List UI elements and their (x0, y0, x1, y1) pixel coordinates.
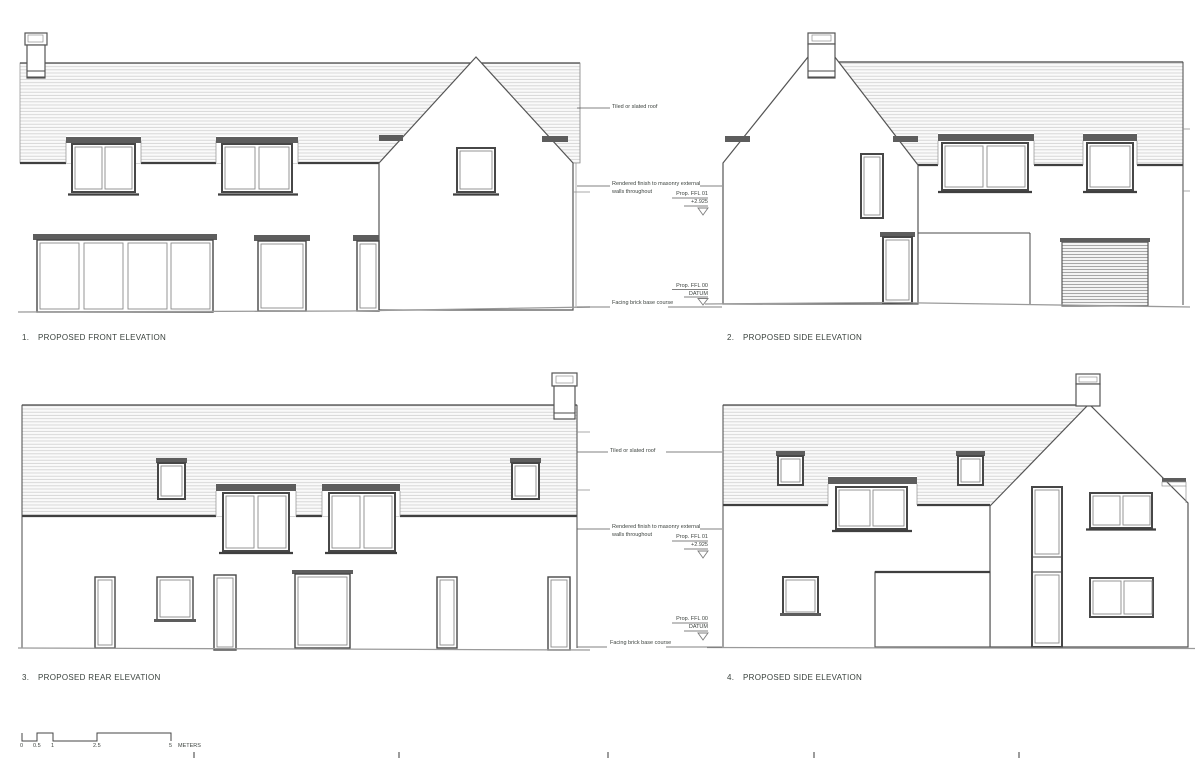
level-label-ffl01-top: Prop. FFL 01 (658, 191, 708, 199)
scale-unit-label: METERS (178, 743, 201, 749)
level-label-ffl00-bottom: Prop. FFL 00 (658, 616, 708, 624)
drawing-sheet: Tiled or slated roof Rendered finish to … (0, 0, 1200, 759)
side-elevation-2-drawing (705, 33, 1190, 307)
rear-chimney (552, 373, 577, 419)
annotation-rendered-finish-top-line1: Rendered finish to masonry external (612, 181, 700, 189)
side-elevation-4-number: 4. (727, 673, 743, 682)
side4-glazing-strip (1032, 487, 1062, 647)
front-elevation-label: 1.PROPOSED FRONT ELEVATION (22, 333, 166, 342)
side2-door (880, 232, 915, 303)
annotation-rendered-finish-bottom-line1: Rendered finish to masonry external (612, 524, 700, 532)
rear-elevation-drawing (18, 373, 590, 650)
level-value-ffl00-bottom: DATUM (658, 624, 708, 632)
scale-mark-5: 5 (169, 743, 172, 749)
scale-bar (22, 733, 171, 741)
annotation-tiled-roof-top: Tiled or slated roof (612, 104, 657, 112)
annotation-rendered-finish-bottom-line2: walls throughout (612, 532, 652, 540)
front-elevation-title: PROPOSED FRONT ELEVATION (38, 333, 166, 342)
side-elevation-4-drawing (707, 374, 1195, 649)
front-elevation-number: 1. (22, 333, 38, 342)
side2-garage-door (1060, 238, 1150, 306)
side2-gable-window (861, 154, 883, 218)
elevation-drawings (0, 0, 1200, 759)
side4-chimney (1076, 374, 1100, 406)
level-marker-icon (698, 633, 708, 640)
annotation-facing-brick-bottom: Facing brick base course (610, 640, 671, 648)
level-marker-icon (698, 208, 708, 215)
side4-garage-door (875, 572, 990, 647)
rear-elevation-title: PROPOSED REAR ELEVATION (38, 673, 161, 682)
front-ground-floor-openings (33, 234, 379, 312)
annotation-facing-brick-top: Facing brick base course (612, 300, 673, 308)
front-gable-window (453, 148, 499, 195)
level-value-ffl00-top: DATUM (658, 291, 708, 299)
level-value-ffl01-top: +2.925 (658, 199, 708, 207)
side-elevation-2-label: 2.PROPOSED SIDE ELEVATION (727, 333, 862, 342)
side-elevation-2-number: 2. (727, 333, 743, 342)
side-elevation-4-title: PROPOSED SIDE ELEVATION (743, 673, 862, 682)
annotation-tiled-roof-bottom: Tiled or slated roof (610, 448, 655, 456)
level-label-ffl01-bottom: Prop. FFL 01 (658, 534, 708, 542)
scale-mark-2-5: 2.5 (93, 743, 101, 749)
annotation-rendered-finish-top-line2: walls throughout (612, 189, 652, 197)
scale-mark-0-5: 0.5 (33, 743, 41, 749)
sheet-edge-ticks (194, 752, 1019, 758)
scale-mark-1: 1 (51, 743, 54, 749)
rear-elevation-label: 3.PROPOSED REAR ELEVATION (22, 673, 161, 682)
level-value-ffl01-bottom: +2.925 (658, 542, 708, 550)
rear-elevation-number: 3. (22, 673, 38, 682)
side-elevation-2-title: PROPOSED SIDE ELEVATION (743, 333, 862, 342)
level-label-ffl00-top: Prop. FFL 00 (658, 283, 708, 291)
front-elevation-drawing (18, 33, 590, 312)
side2-chimney (808, 33, 835, 78)
level-marker-icon (698, 551, 708, 558)
side-elevation-4-label: 4.PROPOSED SIDE ELEVATION (727, 673, 862, 682)
scale-mark-0: 0 (20, 743, 23, 749)
front-chimney (25, 33, 47, 78)
side4-dormer-window (832, 487, 912, 531)
